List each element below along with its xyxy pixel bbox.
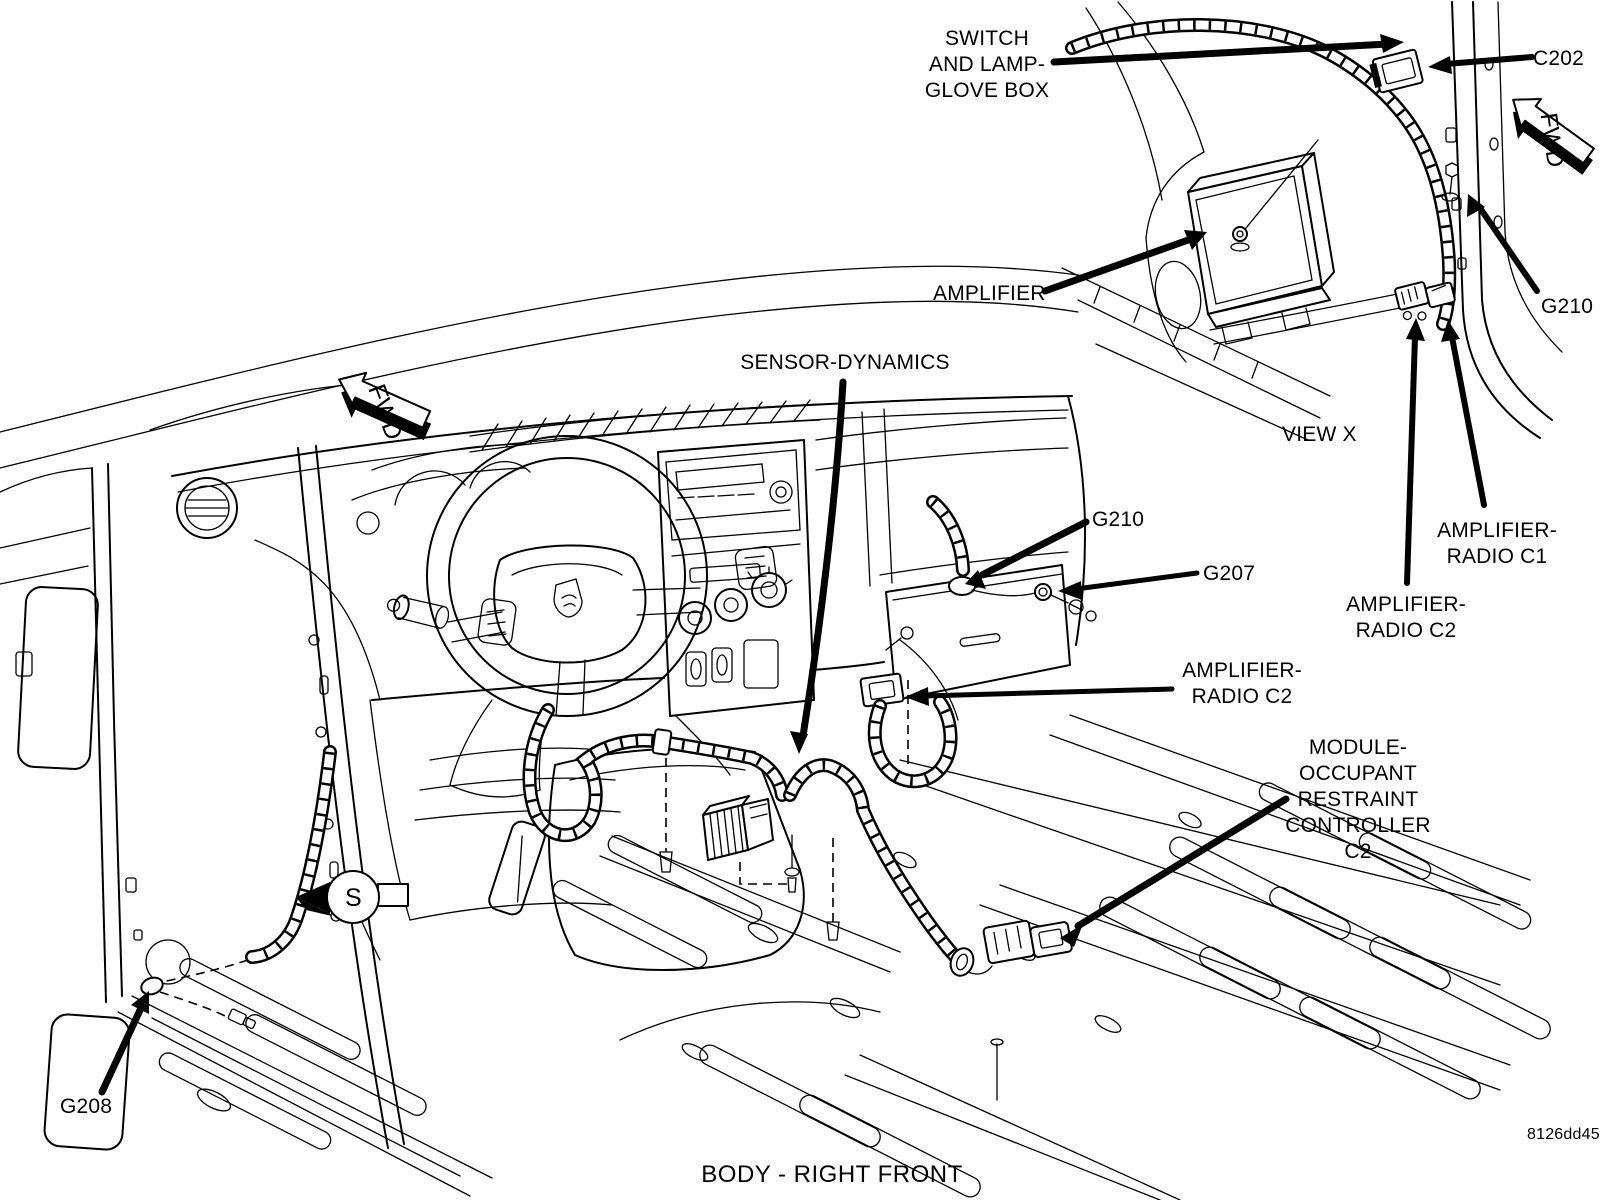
figure-code: 8126dd45 (1527, 1122, 1600, 1148)
callout-label-sensor-dynamics: SENSOR-DYNAMICS (740, 350, 950, 376)
callout-arrow-g207 (1058, 573, 1197, 600)
view-x-label: VIEW X (1282, 422, 1357, 448)
fwd-arrow-inset: FWD (1490, 84, 1600, 190)
c202-connector (1368, 49, 1423, 94)
callout-arrow-amp-radio-c1 (1441, 320, 1484, 505)
callout-label-amplifier: AMPLIFIER (933, 281, 1046, 307)
amp-radio-c2-connector-main (860, 673, 950, 781)
orc-connector (968, 914, 1072, 1100)
callout-label-c202: C202 (1533, 46, 1584, 72)
s-symbol-text: S (345, 884, 362, 912)
diagram-page: FWD (0, 0, 1600, 1200)
fwd-inset-text: FWD (1535, 111, 1569, 169)
callout-label-module-orc: MODULE- OCCUPANT RESTRAINT CONTROLLER C2 (1285, 735, 1431, 865)
callout-label-switch-glove-box: SWITCH AND LAMP- GLOVE BOX (925, 26, 1049, 104)
callout-label-g208: G208 (60, 1094, 112, 1120)
g207-ring-terminal (1035, 584, 1051, 600)
callout-arrow-g210-inset (1467, 194, 1537, 291)
inset-view-x: FWD (1045, 2, 1600, 583)
main-view: FWD S (0, 266, 1554, 1200)
left-rocker-sill (118, 956, 492, 1196)
left-body-side (0, 464, 190, 1151)
g208-grommet (139, 975, 165, 998)
g210-g207-grounds (886, 502, 1096, 765)
callout-arrow-amplifier (1045, 230, 1207, 291)
g208-harness (139, 752, 330, 1030)
callout-arrow-g210-main (965, 522, 1086, 589)
amplifier-box (1188, 140, 1440, 344)
callout-label-g210-main: G210 (1092, 507, 1144, 533)
callout-arrow-amp-radio-c2-inset (1406, 318, 1425, 583)
a-pillar (298, 446, 404, 1148)
callout-label-g210-inset: G210 (1541, 294, 1593, 320)
callout-arrow-c202 (1428, 56, 1532, 74)
callout-label-g207: G207 (1203, 561, 1255, 587)
callout-label-amp-radio-c2-inset: AMPLIFIER- RADIO C2 (1346, 592, 1466, 644)
callout-label-amp-radio-c1: AMPLIFIER- RADIO C1 (1437, 518, 1557, 570)
figure-caption: BODY - RIGHT FRONT (701, 1162, 962, 1188)
callout-label-amp-radio-c2-main: AMPLIFIER- RADIO C2 (1182, 658, 1302, 710)
